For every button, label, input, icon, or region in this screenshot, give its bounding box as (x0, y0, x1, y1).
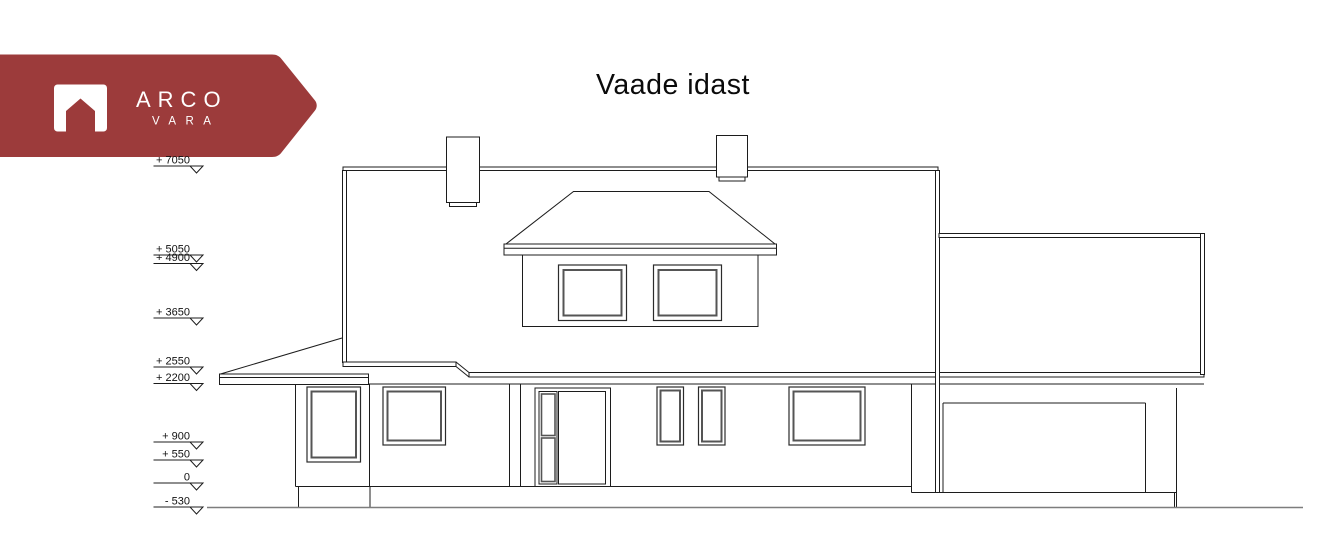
level-triangle-icon (190, 264, 203, 271)
chimney-left (447, 137, 480, 207)
porch-window (307, 387, 361, 462)
elevation-marker-label: + 900 (162, 431, 190, 443)
foundation (296, 487, 1177, 508)
narrow-window-2 (699, 387, 726, 445)
elevation-marker: + 7050 (154, 155, 204, 174)
elevation-marker-label: + 7050 (156, 155, 190, 167)
level-triangle-icon (190, 507, 203, 514)
elevation-marker-label: + 550 (162, 449, 190, 461)
dormer-window-right (654, 265, 722, 321)
level-triangle-icon (190, 460, 203, 467)
elevation-marker: + 2200 (154, 372, 204, 391)
dormer (504, 192, 777, 327)
elevation-marker: + 3650 (154, 307, 204, 326)
elevation-marker: 0 (154, 472, 204, 491)
level-triangle-icon (190, 384, 203, 391)
page: ARCO VARA Vaade idast (0, 0, 1319, 557)
level-triangle-icon (190, 483, 203, 490)
elevation-marker-label: + 2550 (156, 356, 190, 368)
level-triangle-icon (190, 367, 203, 374)
level-triangle-icon (190, 442, 203, 449)
elevation-marker: - 530 (154, 496, 204, 515)
garage-door (943, 403, 1146, 493)
elevation-marker-label: + 4900 (156, 252, 190, 264)
level-triangle-icon (190, 166, 203, 173)
elevation-marker-label: 0 (184, 472, 190, 484)
annex-roof (939, 234, 1205, 375)
elevation-marker: + 550 (154, 449, 204, 468)
narrow-window-1 (657, 387, 684, 445)
elevation-marker: + 900 (154, 431, 204, 450)
living-room-window (789, 387, 865, 445)
level-triangle-icon (190, 318, 203, 325)
elevation-markers: + 7050+ 5050+ 4900+ 3650+ 2550+ 2200+ 90… (154, 155, 204, 515)
elevation-marker-label: - 530 (165, 496, 190, 508)
chimney-right (717, 136, 748, 182)
elevation-marker-label: + 3650 (156, 307, 190, 319)
level-triangle-icon (190, 255, 203, 262)
dormer-window-left (559, 265, 627, 321)
elevation-drawing: + 7050+ 5050+ 4900+ 3650+ 2550+ 2200+ 90… (0, 0, 1319, 557)
window-left-of-door (383, 387, 446, 445)
elevation-marker-label: + 2200 (156, 372, 190, 384)
entrance-door (535, 388, 611, 487)
